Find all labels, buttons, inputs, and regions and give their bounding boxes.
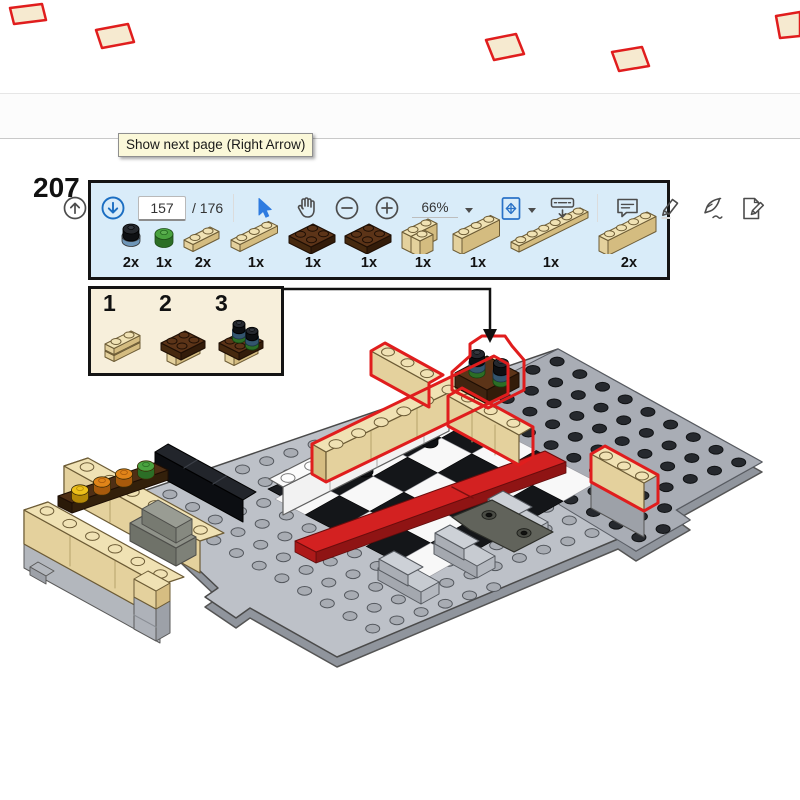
black-roof-slopes bbox=[155, 444, 256, 522]
red-tile-strip bbox=[295, 451, 566, 563]
part-qty: 1x bbox=[156, 255, 172, 271]
checkerboard-floor bbox=[275, 403, 597, 578]
edit-page-icon bbox=[739, 195, 768, 222]
part-qty: 1x bbox=[543, 255, 559, 271]
right-tan-brick bbox=[591, 446, 658, 537]
previous-page-button[interactable] bbox=[60, 193, 90, 223]
tan-back-wall bbox=[312, 343, 533, 482]
part-qty: 1x bbox=[415, 255, 431, 271]
pdf-viewer-window: { "toolbar": { "tooltip": "Show next pag… bbox=[0, 0, 800, 800]
edit-pdf-button[interactable] bbox=[738, 193, 768, 223]
part-qty: 2x bbox=[195, 255, 211, 271]
comment-button[interactable] bbox=[612, 193, 642, 223]
black-tile bbox=[268, 470, 336, 503]
plus-circle-icon bbox=[372, 193, 402, 223]
red-brick-fragments bbox=[10, 4, 800, 71]
part-qty: 1x bbox=[470, 255, 486, 271]
page-total-label: / 176 bbox=[192, 200, 223, 216]
arrow-down-circle-icon bbox=[98, 193, 128, 223]
next-page-tooltip: Show next page (Right Arrow) bbox=[118, 133, 313, 157]
brown-strip-with-rounds bbox=[58, 461, 168, 513]
zoom-in-button[interactable] bbox=[372, 193, 402, 223]
toolbar-divider bbox=[597, 194, 598, 222]
red-highlight-outlines bbox=[312, 336, 658, 511]
part-qty: 1x bbox=[248, 255, 264, 271]
zoom-dropdown-caret-icon[interactable] bbox=[464, 206, 474, 214]
toolbar-divider bbox=[233, 194, 234, 222]
select-tool-button[interactable] bbox=[248, 193, 278, 223]
highlighter-icon bbox=[656, 195, 683, 222]
part-qty: 2x bbox=[621, 255, 637, 271]
hand-icon bbox=[292, 193, 322, 223]
fit-page-icon bbox=[498, 195, 524, 222]
left-tan-walls bbox=[24, 458, 224, 643]
substep-illustrations bbox=[91, 289, 281, 373]
minus-circle-icon bbox=[332, 193, 362, 223]
baseplate bbox=[123, 349, 762, 667]
page-display-button[interactable] bbox=[548, 193, 578, 223]
fill-sign-button[interactable] bbox=[696, 193, 726, 223]
part-qty: 2x bbox=[123, 255, 139, 271]
gray-step-stacks bbox=[378, 491, 548, 604]
arrow-up-circle-icon bbox=[60, 193, 90, 223]
white-wall bbox=[269, 395, 449, 515]
part-qty: 1x bbox=[305, 255, 321, 271]
page-display-icon bbox=[549, 195, 577, 222]
dark-l-plate bbox=[452, 500, 553, 552]
next-page-button[interactable] bbox=[98, 193, 128, 223]
brown-plate-with-rounds bbox=[455, 349, 519, 404]
page-number-input[interactable]: 157 bbox=[138, 196, 186, 221]
substeps-box: 1 2 3 bbox=[88, 286, 284, 376]
gray-stairs bbox=[130, 500, 196, 566]
baseplate-studs bbox=[139, 357, 746, 633]
fit-page-button[interactable] bbox=[496, 193, 526, 223]
highlight-button[interactable] bbox=[654, 193, 684, 223]
cursor-arrow-icon bbox=[248, 193, 278, 223]
hand-tool-button[interactable] bbox=[292, 193, 322, 223]
fountain-pen-icon bbox=[697, 195, 726, 222]
comment-bubble-icon bbox=[614, 195, 641, 222]
part-qty: 1x bbox=[361, 255, 377, 271]
zoom-out-button[interactable] bbox=[332, 193, 362, 223]
fit-dropdown-caret-icon[interactable] bbox=[527, 206, 537, 214]
callout-arrow bbox=[284, 289, 497, 343]
zoom-level-value[interactable]: 66% bbox=[412, 200, 458, 218]
